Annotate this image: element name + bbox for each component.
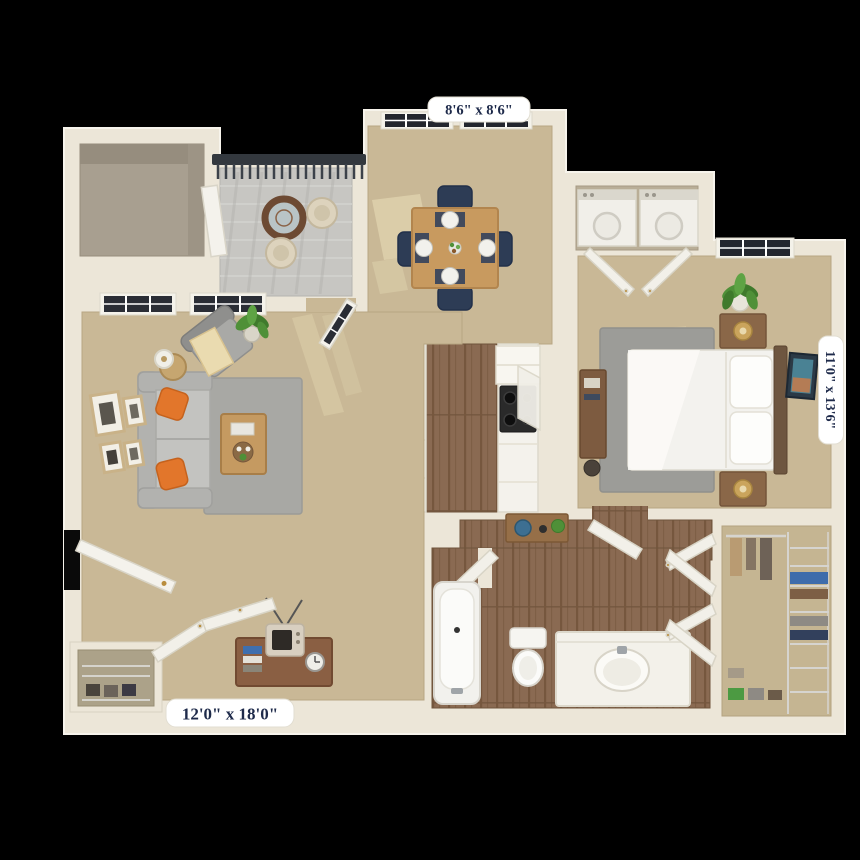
living-dimension-label: 12'0" x 18'0": [166, 699, 294, 727]
wall-art: [786, 353, 818, 399]
bathroom: [432, 506, 712, 708]
living-dimension-text: 12'0" x 18'0": [182, 705, 278, 724]
dining-dimension-label: 8'6" x 8'6": [428, 97, 530, 122]
bedroom-doorway: [592, 506, 648, 522]
floor-plan-stage: 8'6" x 8'6" 11'0" x 13'6" 12'0" x 18'0": [0, 0, 860, 860]
bedroom: [578, 238, 831, 508]
open-cabinet-door: [518, 366, 540, 430]
dining-room: [368, 112, 552, 344]
bedroom-dimension-text: 11'0" x 13'6": [822, 351, 837, 430]
bedroom-window: [716, 238, 794, 258]
washer: [578, 190, 636, 246]
hall-shelf: [506, 514, 568, 542]
floor-plan-svg: 8'6" x 8'6" 11'0" x 13'6" 12'0" x 18'0": [0, 0, 860, 860]
faucet: [617, 646, 627, 654]
headboard: [774, 346, 787, 474]
sofa: [138, 372, 212, 508]
hanging-clothes: [730, 538, 742, 576]
living-window: [100, 293, 176, 315]
entry-doorway: [64, 530, 80, 590]
bathtub: [434, 582, 480, 704]
living-room: [64, 293, 462, 712]
balcony: [201, 154, 366, 296]
laundry-closet: [576, 186, 698, 250]
nightstand: [720, 314, 766, 348]
pillow: [730, 412, 772, 464]
shoes: [728, 688, 744, 700]
throw-pillow: [155, 457, 189, 491]
outdoor-table: [265, 199, 303, 237]
dryer: [640, 190, 698, 246]
bedroom-dimension-label: 11'0" x 13'6": [819, 336, 844, 444]
pillow: [730, 356, 772, 408]
folded-jeans: [790, 572, 828, 584]
storage-room: [80, 144, 204, 256]
bed: [628, 346, 787, 474]
dining-dimension-text: 8'6" x 8'6": [445, 103, 513, 119]
vanity: [556, 632, 690, 706]
nightstand: [720, 472, 766, 506]
coffee-table: [221, 414, 266, 474]
toilet: [510, 628, 546, 686]
